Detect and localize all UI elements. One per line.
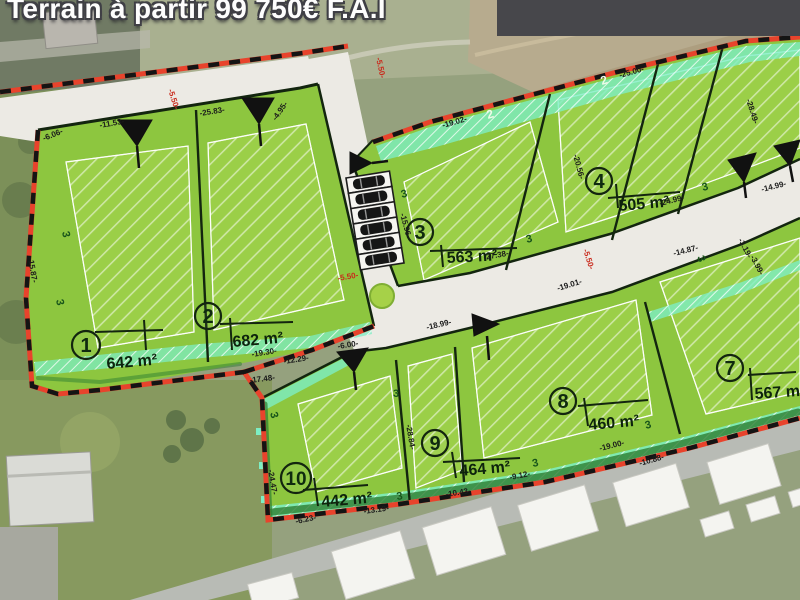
banner-background [497,0,800,36]
zone-3-label: 3 [393,388,399,400]
site-plan-map: 1 642 m² 2 682 m² 3 563 m² 4 505 m² 7 56… [0,0,800,600]
parcel-4-number: 4 [593,171,605,193]
parcel-2-number: 2 [202,306,213,328]
parcel-9-number: 9 [429,433,440,455]
parcel-10-number: 10 [285,469,306,490]
parcel-1-number: 1 [80,335,91,357]
parcel-7-area: 567 m² [754,382,800,402]
tree-icon [370,284,394,308]
parcel-7-number: 7 [724,358,735,380]
parcel-3-number: 3 [414,222,425,244]
banner-title: Terrain à partir 99 750€ F.A.I [7,0,386,25]
parcel-8-number: 8 [557,391,568,413]
listing-image: 1 642 m² 2 682 m² 3 563 m² 4 505 m² 7 56… [0,0,800,600]
existing-house [6,452,94,526]
